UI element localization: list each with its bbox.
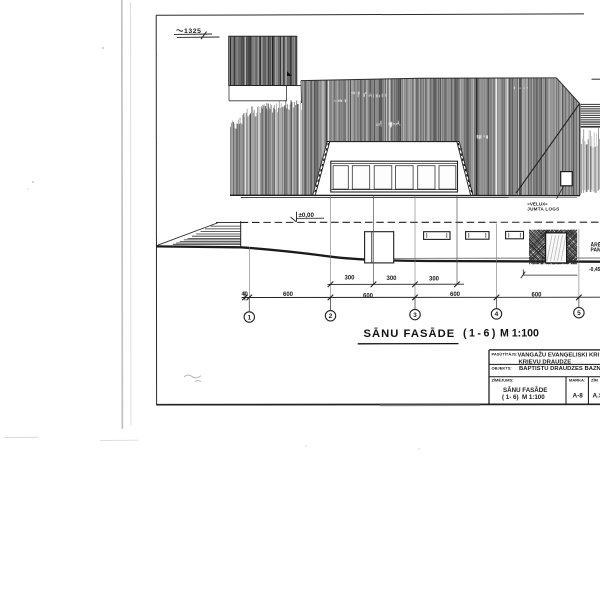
svg-text:5: 5 <box>577 310 581 317</box>
svg-text:SĀNU FASĀDE: SĀNU FASĀDE <box>364 328 456 340</box>
svg-text:600: 600 <box>532 293 543 299</box>
svg-text:-0,45: -0,45 <box>589 267 600 273</box>
svg-text:600: 600 <box>363 293 374 299</box>
svg-text:JUMTA LOGS: JUMTA LOGS <box>527 206 559 211</box>
svg-text:PAM: PAM <box>591 247 600 253</box>
svg-text:VANGAŽU EVANĢELISKI KRI: VANGAŽU EVANĢELISKI KRI <box>518 350 600 358</box>
svg-text:A.S: A.S <box>593 393 600 400</box>
svg-text:600: 600 <box>450 292 461 298</box>
svg-text:1: 1 <box>247 314 251 321</box>
svg-text:300: 300 <box>429 276 440 282</box>
svg-text:( 1- 6) M 1:100: ( 1- 6) M 1:100 <box>502 394 545 401</box>
svg-text:M 1:100: M 1:100 <box>500 327 539 339</box>
svg-text:ZĪM: ZĪM <box>591 377 599 382</box>
svg-text:BAPTISTU DRAUDZES BAZN: BAPTISTU DRAUDZES BAZN <box>519 366 600 372</box>
svg-text:600: 600 <box>283 292 294 298</box>
svg-text:(1-6): (1-6) <box>463 327 498 339</box>
svg-text:OBJEKTS:: OBJEKTS: <box>492 366 512 371</box>
svg-text:40: 40 <box>242 291 248 297</box>
svg-text:3: 3 <box>413 312 417 319</box>
svg-text:300: 300 <box>345 276 356 282</box>
svg-text:MARKA:: MARKA: <box>569 377 585 382</box>
svg-text:ZĪMĒJUMS:: ZĪMĒJUMS: <box>492 378 514 383</box>
svg-text:2: 2 <box>329 313 333 320</box>
svg-text:PASŪTĪTĀJS:: PASŪTĪTĀJS: <box>492 351 518 356</box>
svg-text:300: 300 <box>387 276 398 282</box>
svg-text:KRIEVU DRAUDZE: KRIEVU DRAUDZE <box>519 359 572 365</box>
svg-text:A-8: A-8 <box>573 393 584 400</box>
svg-text:4: 4 <box>495 311 499 318</box>
